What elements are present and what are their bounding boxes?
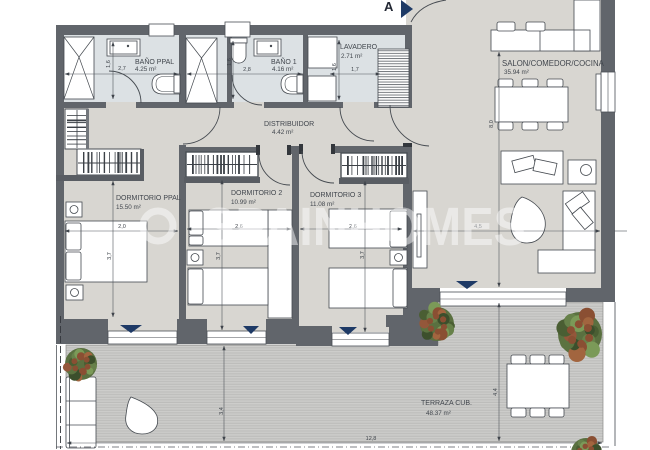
svg-text:1,7: 1,7 <box>351 67 359 73</box>
svg-text:2,0: 2,0 <box>118 224 126 230</box>
svg-text:8,0: 8,0 <box>489 120 495 128</box>
svg-text:BAÑO 1: BAÑO 1 <box>271 57 297 66</box>
svg-text:15.50 m²: 15.50 m² <box>116 204 141 211</box>
svg-text:4.16 m²: 4.16 m² <box>272 66 293 73</box>
svg-text:12,8: 12,8 <box>366 436 377 442</box>
svg-text:1,6: 1,6 <box>332 63 338 71</box>
svg-text:DORMITORIO PPAL: DORMITORIO PPAL <box>116 195 181 202</box>
svg-text:BAÑO PPAL: BAÑO PPAL <box>135 57 174 66</box>
svg-text:35.94 m²: 35.94 m² <box>504 69 529 76</box>
svg-text:2.71 m²: 2.71 m² <box>341 53 362 60</box>
svg-text:DISTRIBUIDOR: DISTRIBUIDOR <box>264 121 314 128</box>
svg-text:SALON/COMEDOR/COCINA: SALON/COMEDOR/COCINA <box>502 59 605 68</box>
svg-text:2,8: 2,8 <box>243 67 251 73</box>
svg-text:1,6: 1,6 <box>227 58 233 66</box>
svg-text:4.42 m²: 4.42 m² <box>272 129 293 136</box>
svg-text:2,7: 2,7 <box>118 66 126 72</box>
svg-text:4.25 m²: 4.25 m² <box>135 66 156 73</box>
svg-text:1,6: 1,6 <box>106 60 112 68</box>
svg-text:4,4: 4,4 <box>493 388 499 396</box>
svg-text:3,4: 3,4 <box>219 407 225 415</box>
svg-text:A: A <box>384 0 394 14</box>
svg-text:TERRAZA CUB.: TERRAZA CUB. <box>421 400 472 407</box>
svg-text:SPAINHOMES: SPAINHOMES <box>203 196 526 257</box>
svg-text:48.37 m²: 48.37 m² <box>426 410 451 417</box>
svg-text:3,7: 3,7 <box>107 252 113 260</box>
svg-text:LAVADERO: LAVADERO <box>340 44 378 51</box>
